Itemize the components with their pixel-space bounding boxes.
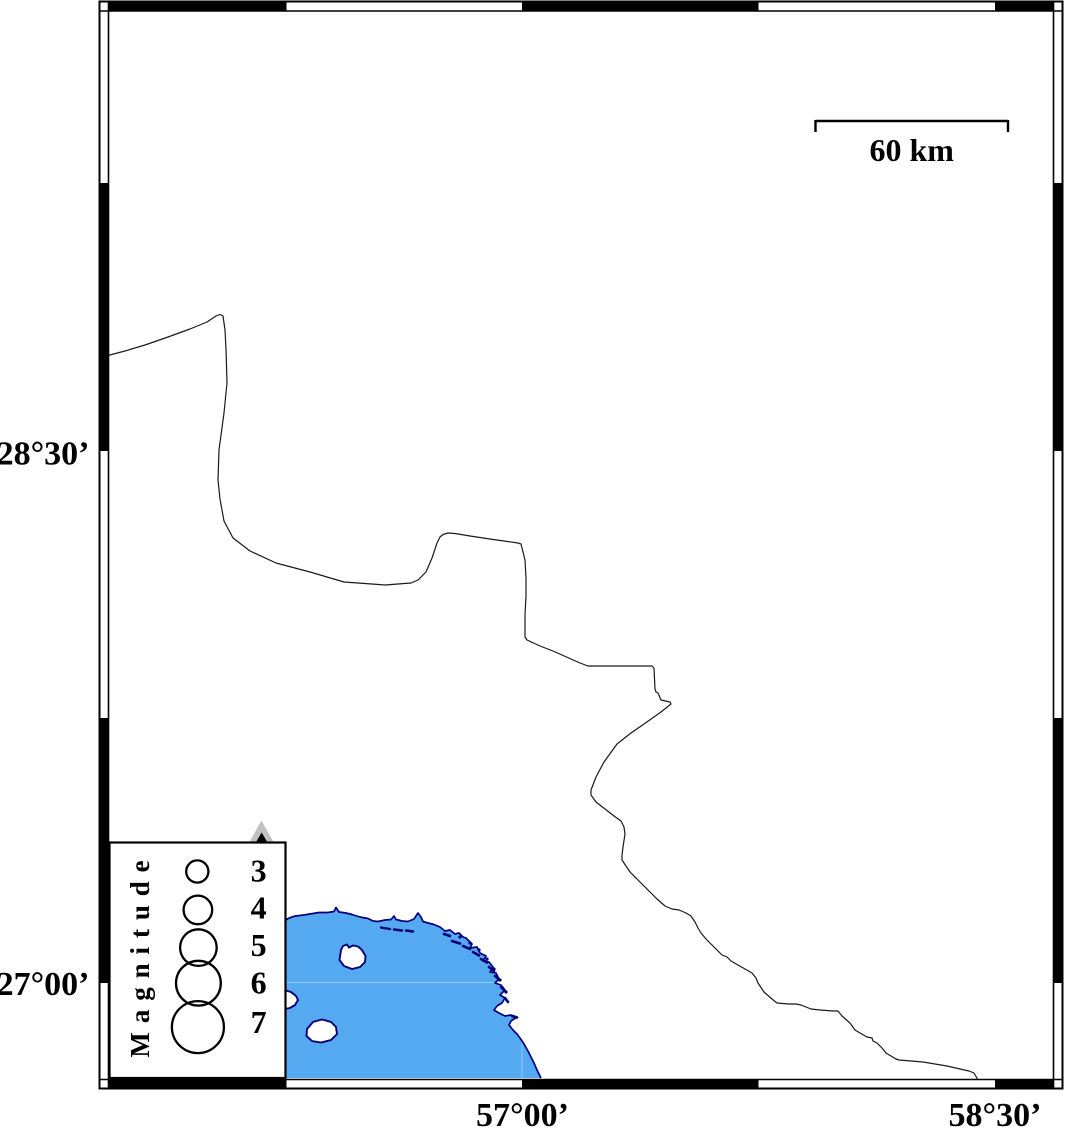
- svg-text:3: 3: [251, 853, 267, 889]
- svg-text:7: 7: [251, 1004, 267, 1040]
- svg-text:27°00’: 27°00’: [0, 966, 90, 1003]
- svg-text:58°30’: 58°30’: [949, 1097, 1042, 1127]
- svg-text:6: 6: [251, 964, 267, 1000]
- svg-text:60 km: 60 km: [869, 132, 954, 168]
- svg-text:4: 4: [251, 890, 267, 926]
- svg-text:5: 5: [251, 927, 267, 963]
- svg-text:57°00’: 57°00’: [476, 1097, 569, 1127]
- svg-text:28°30’: 28°30’: [0, 436, 90, 473]
- svg-text:Magnitude: Magnitude: [125, 851, 155, 1057]
